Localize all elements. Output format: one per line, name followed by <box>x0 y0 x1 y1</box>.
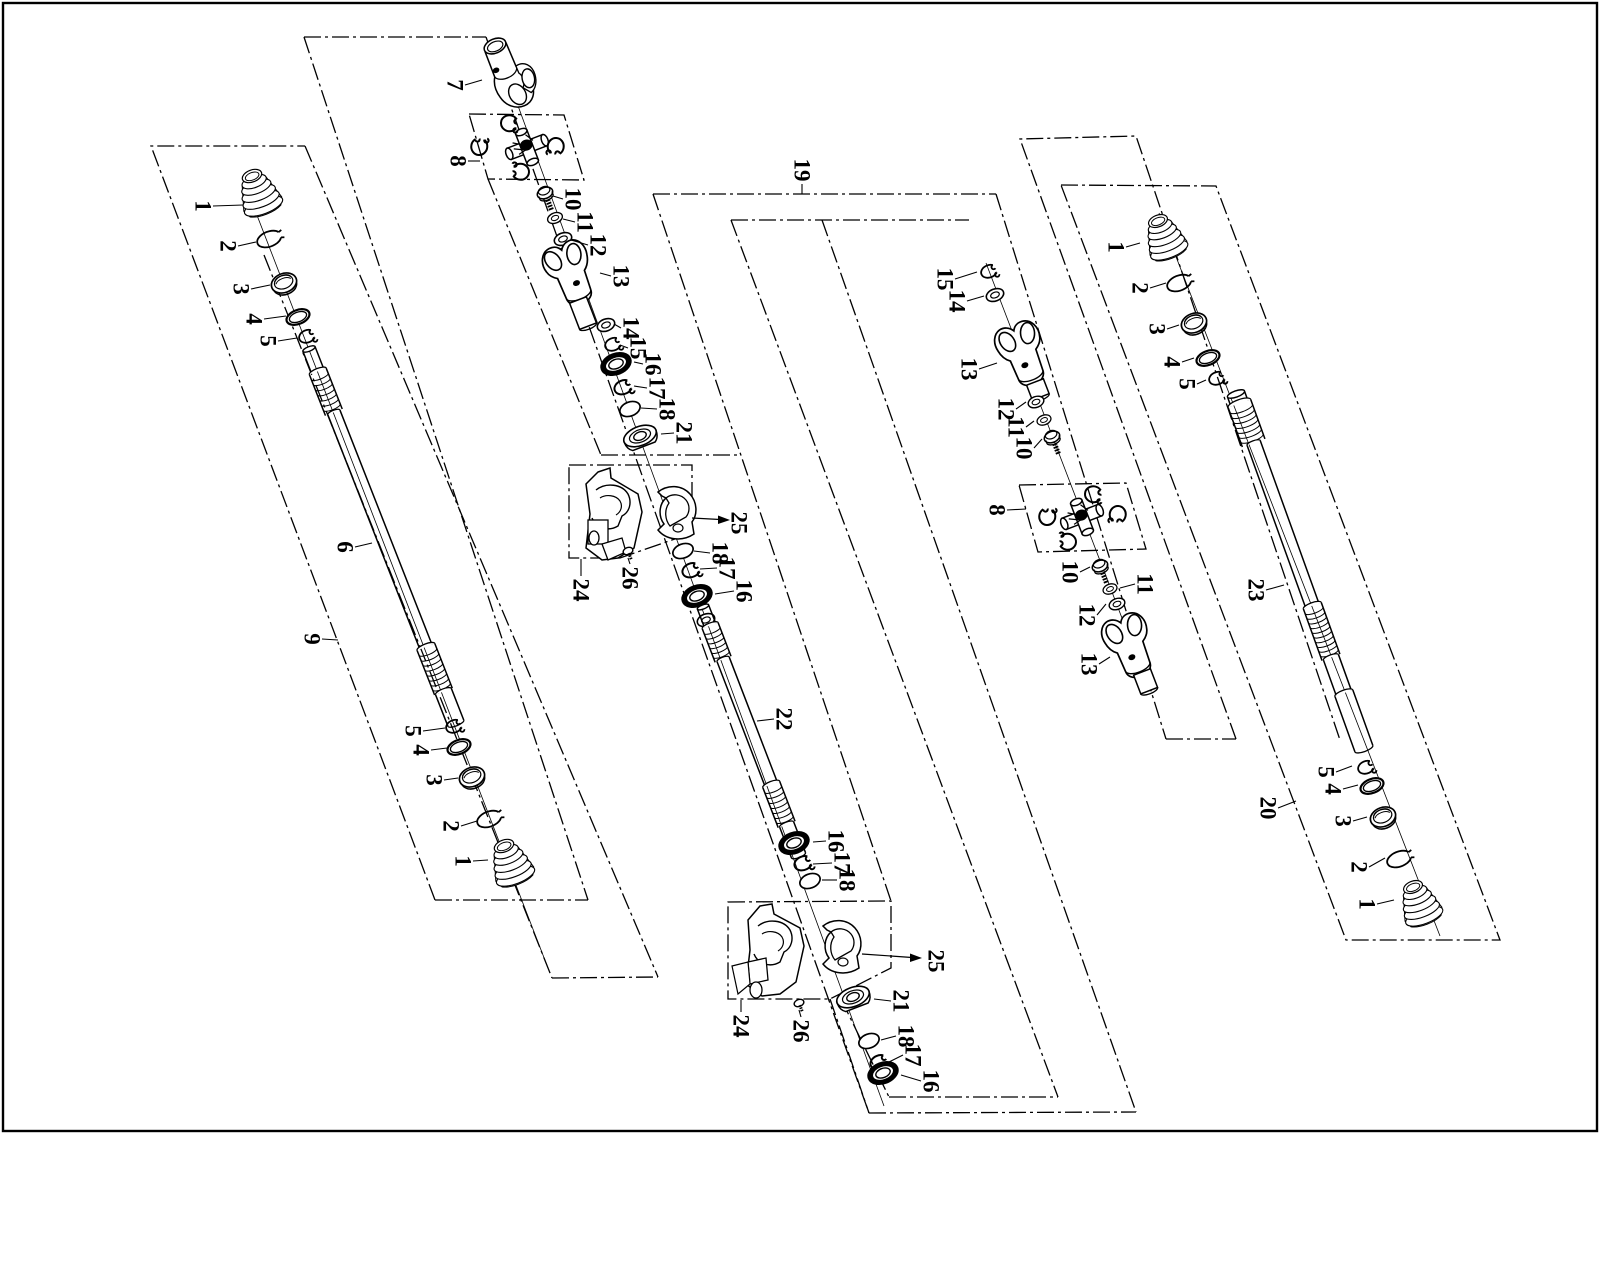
svg-text:24: 24 <box>729 1015 754 1039</box>
svg-text:16: 16 <box>641 353 666 376</box>
svg-text:4: 4 <box>1160 356 1185 368</box>
svg-text:25: 25 <box>924 950 949 973</box>
svg-text:23: 23 <box>1244 579 1269 602</box>
svg-text:9: 9 <box>300 633 325 645</box>
svg-text:1: 1 <box>191 200 216 212</box>
svg-text:16: 16 <box>919 1070 944 1093</box>
svg-text:2: 2 <box>1347 861 1372 873</box>
svg-text:25: 25 <box>727 512 752 535</box>
svg-text:5: 5 <box>256 335 281 347</box>
svg-text:5: 5 <box>401 725 426 737</box>
svg-text:12: 12 <box>586 234 611 257</box>
svg-text:4: 4 <box>242 313 267 325</box>
svg-text:17: 17 <box>715 557 740 580</box>
svg-text:3: 3 <box>229 283 254 295</box>
svg-text:22: 22 <box>772 708 797 731</box>
svg-text:21: 21 <box>672 422 697 445</box>
svg-text:26: 26 <box>618 567 643 590</box>
svg-text:10: 10 <box>561 188 586 211</box>
svg-text:19: 19 <box>790 159 815 182</box>
svg-text:1: 1 <box>1355 898 1380 910</box>
svg-text:17: 17 <box>645 377 670 400</box>
svg-text:3: 3 <box>1331 815 1356 827</box>
svg-text:14: 14 <box>945 290 970 314</box>
svg-text:12: 12 <box>1075 604 1100 627</box>
svg-text:11: 11 <box>1004 416 1029 438</box>
svg-text:11: 11 <box>573 211 598 233</box>
svg-text:1: 1 <box>1104 241 1129 253</box>
svg-text:5: 5 <box>1314 766 1339 778</box>
svg-text:10: 10 <box>1012 437 1037 460</box>
svg-text:1: 1 <box>451 855 476 867</box>
svg-text:16: 16 <box>824 830 849 853</box>
svg-text:2: 2 <box>1128 282 1153 294</box>
svg-text:7: 7 <box>443 79 468 91</box>
svg-text:13: 13 <box>957 358 982 381</box>
svg-text:4: 4 <box>409 744 434 756</box>
svg-text:8: 8 <box>446 155 471 167</box>
svg-text:8: 8 <box>985 504 1010 516</box>
svg-text:11: 11 <box>1133 573 1158 595</box>
svg-text:5: 5 <box>1175 378 1200 390</box>
svg-text:20: 20 <box>1256 797 1281 820</box>
svg-text:21: 21 <box>889 990 914 1013</box>
svg-text:10: 10 <box>1058 561 1083 584</box>
svg-text:13: 13 <box>1077 653 1102 676</box>
svg-text:26: 26 <box>789 1020 814 1043</box>
svg-text:4: 4 <box>1321 783 1346 795</box>
svg-text:6: 6 <box>333 541 358 553</box>
svg-text:16: 16 <box>732 580 757 603</box>
svg-text:3: 3 <box>1145 323 1170 335</box>
svg-text:18: 18 <box>655 398 680 421</box>
svg-text:2: 2 <box>216 240 241 252</box>
svg-text:3: 3 <box>422 774 447 786</box>
svg-text:17: 17 <box>901 1044 926 1067</box>
svg-text:24: 24 <box>569 579 594 603</box>
svg-text:15: 15 <box>933 268 958 291</box>
svg-text:2: 2 <box>439 820 464 832</box>
svg-text:18: 18 <box>835 869 860 892</box>
svg-text:13: 13 <box>609 265 634 288</box>
